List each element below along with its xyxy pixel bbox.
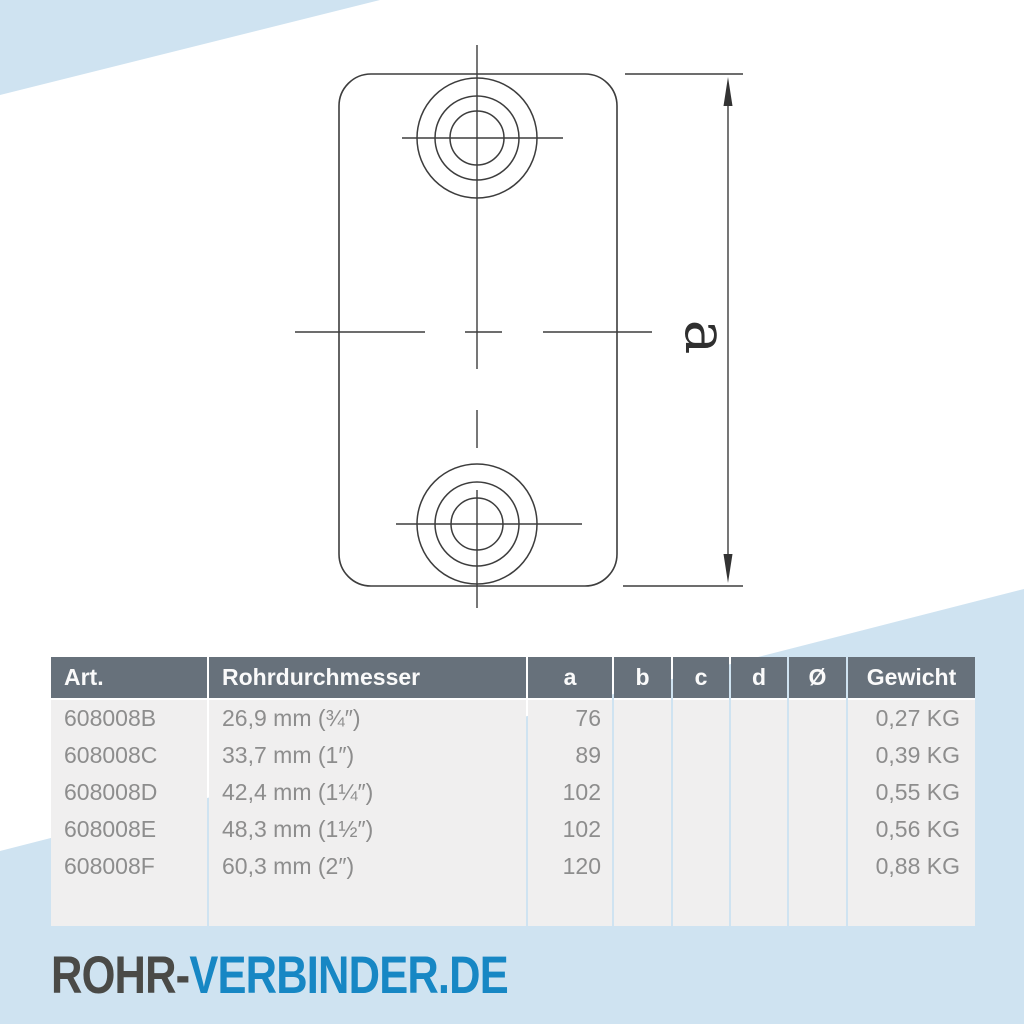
cell-gewicht: 0,27 KG: [848, 700, 975, 737]
filler-cell: [848, 885, 975, 926]
header-gewicht: Gewicht: [848, 657, 975, 700]
cell-b: [614, 848, 671, 885]
cell-a: 76: [528, 700, 612, 737]
cell-gewicht: 0,39 KG: [848, 737, 975, 774]
cell-b: [614, 700, 671, 737]
cell-diameter: 60,3 mm (2″): [209, 848, 526, 885]
cell-diameter: 26,9 mm (¾″): [209, 700, 526, 737]
header-b: b: [614, 657, 671, 700]
cell-c: [673, 737, 729, 774]
filler-cell: [209, 885, 526, 926]
cell-b: [614, 737, 671, 774]
cell-art: 608008F: [51, 848, 207, 885]
cell-d: [731, 848, 787, 885]
cell-art: 608008B: [51, 700, 207, 737]
filler-cell: [614, 885, 671, 926]
cell-diameter: 33,7 mm (1″): [209, 737, 526, 774]
arrowhead-up-icon: [724, 77, 733, 106]
bottom-hole: [396, 464, 582, 584]
logo-text-rohr: ROHR-: [51, 946, 189, 1005]
cell-d: [731, 737, 787, 774]
cell-a: 120: [528, 848, 612, 885]
cell-d: [731, 700, 787, 737]
cell-dia: [789, 848, 846, 885]
cell-dia: [789, 737, 846, 774]
cell-diameter: 42,4 mm (1¼″): [209, 774, 526, 811]
dimension-table: Art. Rohrdurchmesser a b c d Ø Gewicht 6…: [51, 657, 975, 926]
header-c: c: [673, 657, 729, 700]
filler-cell: [731, 885, 787, 926]
cell-b: [614, 811, 671, 848]
filler-cell: [51, 885, 207, 926]
arrowhead-down-icon: [724, 554, 733, 583]
cell-dia: [789, 700, 846, 737]
cell-a: 89: [528, 737, 612, 774]
logo-text-verbinder: VERBINDER.DE: [189, 946, 508, 1005]
header-art: Art.: [51, 657, 207, 700]
cell-b: [614, 774, 671, 811]
cell-art: 608008D: [51, 774, 207, 811]
cell-c: [673, 774, 729, 811]
header-diameter-symbol: Ø: [789, 657, 846, 700]
cell-gewicht: 0,56 KG: [848, 811, 975, 848]
dimension-label-a: a: [672, 320, 740, 355]
cell-dia: [789, 774, 846, 811]
cell-gewicht: 0,88 KG: [848, 848, 975, 885]
header-diameter: Rohrdurchmesser: [209, 657, 526, 700]
cell-art: 608008C: [51, 737, 207, 774]
cell-c: [673, 700, 729, 737]
top-hole: [402, 78, 563, 198]
filler-cell: [528, 885, 612, 926]
cell-a: 102: [528, 774, 612, 811]
header-d: d: [731, 657, 787, 700]
cell-d: [731, 774, 787, 811]
cell-c: [673, 811, 729, 848]
plate-outline: [339, 74, 617, 586]
brand-logo: ROHR-VERBINDER.DE: [51, 945, 508, 1006]
cell-c: [673, 848, 729, 885]
technical-drawing: a: [0, 0, 1024, 660]
cell-diameter: 48,3 mm (1½″): [209, 811, 526, 848]
header-a: a: [528, 657, 612, 700]
filler-cell: [789, 885, 846, 926]
filler-cell: [673, 885, 729, 926]
cell-gewicht: 0,55 KG: [848, 774, 975, 811]
cell-art: 608008E: [51, 811, 207, 848]
cell-d: [731, 811, 787, 848]
cell-a: 102: [528, 811, 612, 848]
cell-dia: [789, 811, 846, 848]
